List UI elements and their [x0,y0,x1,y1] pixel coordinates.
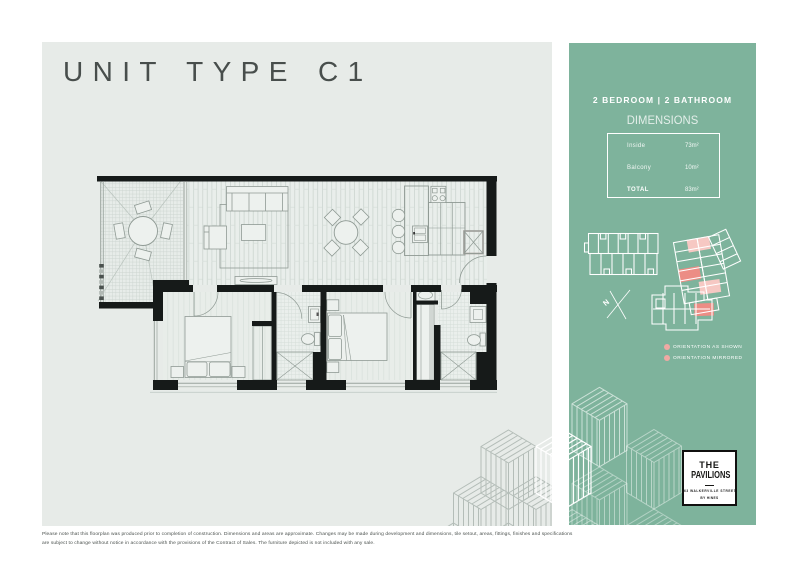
svg-text:N: N [601,297,611,307]
